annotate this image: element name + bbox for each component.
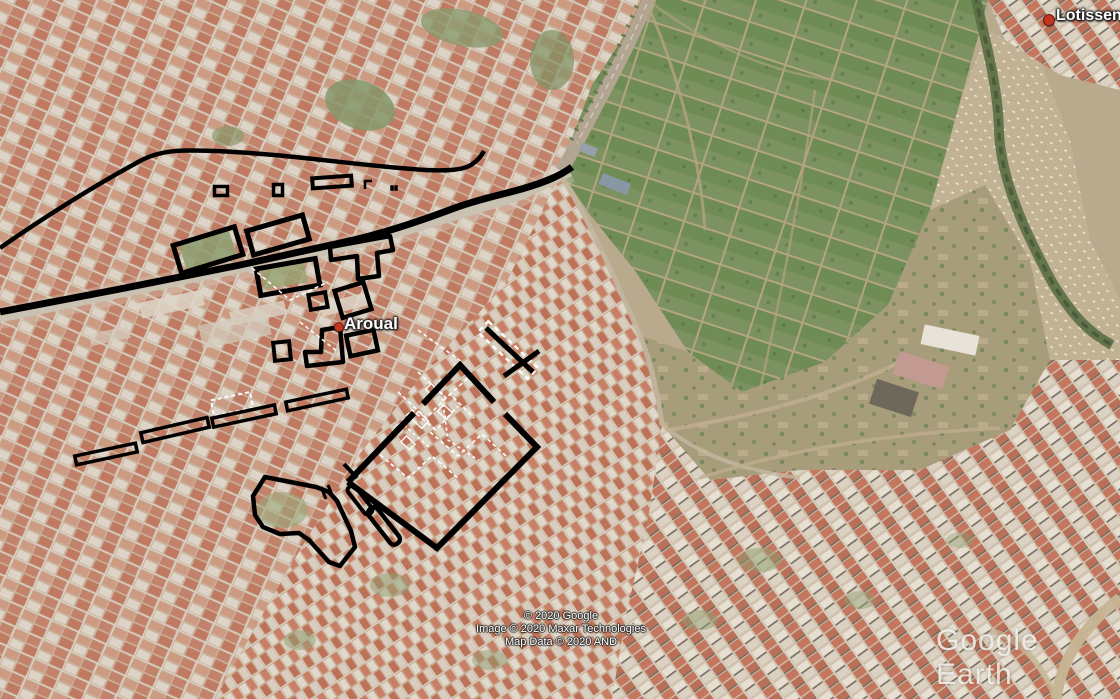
google-earth-viewport[interactable]: Aroual Lotissen © 2020 Google Image © 20… <box>0 0 1120 699</box>
google-earth-watermark: Google Earth <box>936 624 1120 692</box>
map-attribution: © 2020 Google Image © 2020 Maxar Technol… <box>420 610 702 649</box>
map-pin-icon[interactable] <box>334 322 344 332</box>
satellite-imagery <box>0 0 1120 699</box>
place-label-aroual[interactable]: Aroual <box>344 314 398 334</box>
attribution-line-1: © 2020 Google <box>420 610 702 623</box>
attribution-line-3: Map Data © 2020 AND <box>420 636 702 649</box>
place-label-lotissement[interactable]: Lotissen <box>1056 7 1120 25</box>
map-pin-icon[interactable] <box>1043 14 1055 26</box>
place-label-text: Aroual <box>344 314 398 333</box>
attribution-line-2: Image © 2020 Maxar Technologies <box>420 623 702 636</box>
place-label-text: Lotissen <box>1056 7 1120 24</box>
